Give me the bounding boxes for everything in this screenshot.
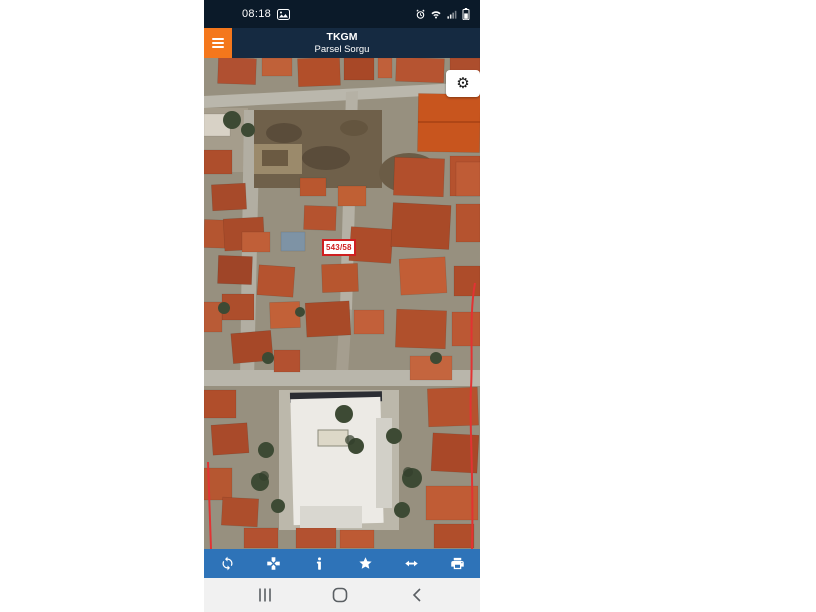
printer-icon bbox=[450, 556, 465, 571]
app-subtitle: Parsel Sorgu bbox=[315, 44, 370, 56]
app-title: TKGM bbox=[327, 31, 358, 44]
recents-icon bbox=[257, 587, 273, 603]
map-toolbar bbox=[204, 549, 480, 578]
status-time: 08:18 bbox=[242, 8, 271, 20]
home-icon bbox=[332, 587, 348, 603]
battery-icon bbox=[462, 8, 470, 20]
satellite-imagery bbox=[204, 58, 480, 549]
page: 08:18 TKGM Parsel Sorgu bbox=[0, 0, 816, 612]
double-arrow-icon bbox=[404, 556, 419, 571]
signal-icon bbox=[446, 9, 458, 20]
star-icon bbox=[358, 556, 373, 571]
back-button[interactable] bbox=[402, 578, 432, 612]
center-location-icon bbox=[266, 556, 281, 571]
center-location-button[interactable] bbox=[260, 551, 286, 577]
recents-button[interactable] bbox=[250, 578, 280, 612]
android-nav-bar bbox=[204, 578, 480, 612]
refresh-icon bbox=[220, 556, 235, 571]
info-button[interactable] bbox=[306, 551, 332, 577]
refresh-button[interactable] bbox=[214, 551, 240, 577]
phone-screen: 08:18 TKGM Parsel Sorgu bbox=[204, 0, 480, 612]
map-settings-button[interactable]: ⚙ bbox=[446, 70, 480, 97]
home-button[interactable] bbox=[325, 578, 355, 612]
screenshot-image-icon bbox=[277, 9, 290, 20]
back-icon bbox=[410, 587, 424, 603]
wifi-icon bbox=[430, 9, 442, 20]
satellite-map[interactable]: 543/58 ⚙ bbox=[204, 58, 480, 549]
parcel-number-label[interactable]: 543/58 bbox=[322, 239, 356, 256]
info-icon bbox=[312, 556, 327, 571]
print-button[interactable] bbox=[444, 551, 470, 577]
app-bar: TKGM Parsel Sorgu bbox=[204, 28, 480, 58]
gear-icon: ⚙ bbox=[456, 76, 469, 91]
alarm-icon bbox=[415, 9, 426, 20]
favorite-button[interactable] bbox=[352, 551, 378, 577]
status-right-icons bbox=[415, 8, 470, 20]
measure-button[interactable] bbox=[398, 551, 424, 577]
app-titles: TKGM Parsel Sorgu bbox=[204, 28, 480, 58]
status-bar: 08:18 bbox=[204, 0, 480, 28]
